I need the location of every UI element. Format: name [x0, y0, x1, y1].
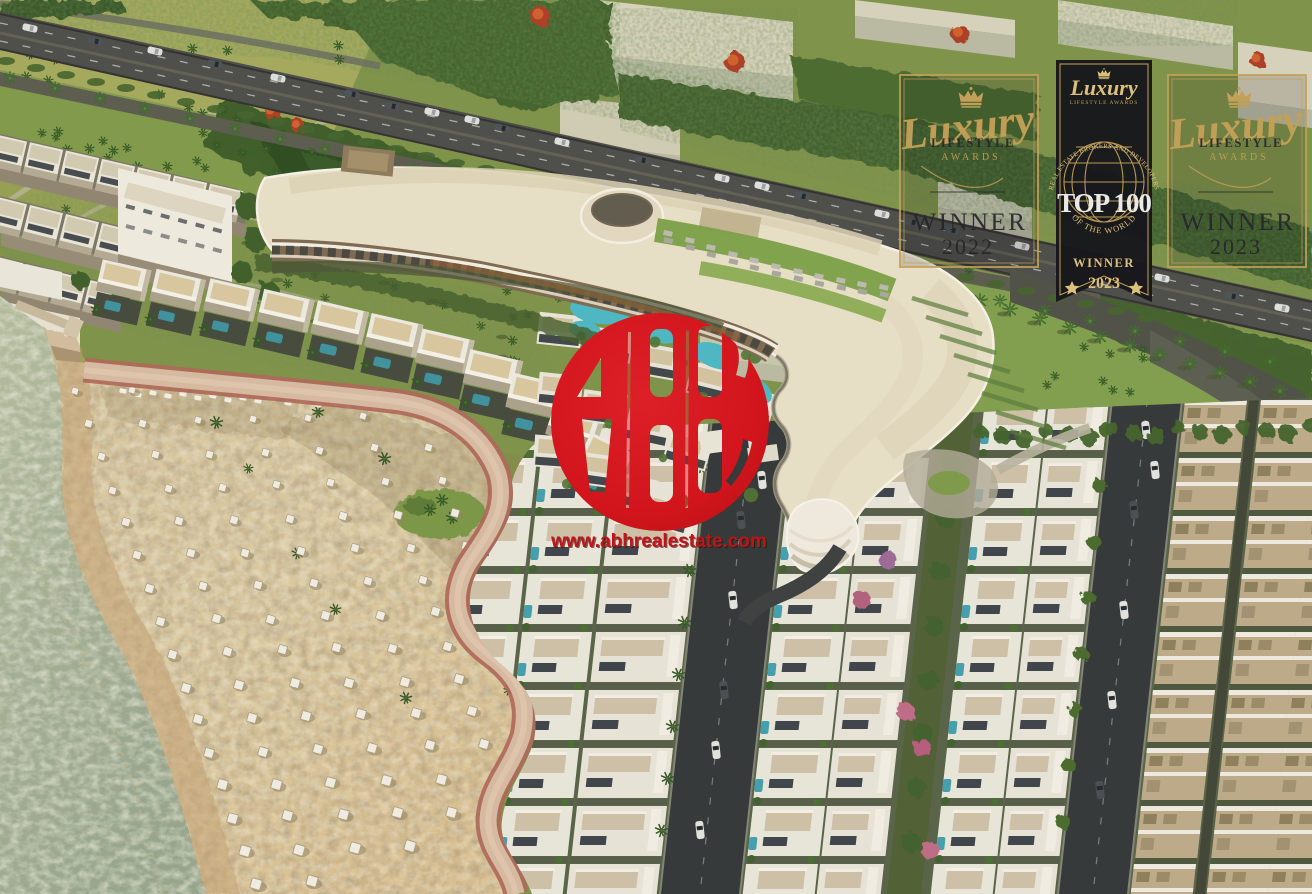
- svg-text:AWARDS: AWARDS: [941, 152, 1000, 163]
- svg-text:www.abhrealestate.com: www.abhrealestate.com: [550, 531, 767, 552]
- svg-text:LIFESTYLE: LIFESTYLE: [931, 136, 1015, 150]
- svg-text:WINNER: WINNER: [1073, 256, 1135, 270]
- svg-text:LIFESTYLE: LIFESTYLE: [1199, 136, 1283, 150]
- svg-text:WINNER: WINNER: [913, 209, 1028, 236]
- svg-text:2023: 2023: [1088, 275, 1120, 292]
- svg-text:WINNER: WINNER: [1181, 209, 1296, 236]
- svg-text:AWARDS: AWARDS: [1209, 152, 1268, 163]
- svg-text:TOP 100: TOP 100: [1057, 188, 1151, 218]
- svg-text:2023: 2023: [1210, 234, 1262, 259]
- svg-text:Luxury: Luxury: [1069, 75, 1137, 100]
- svg-text:2022: 2022: [942, 234, 994, 259]
- svg-text:LIFESTYLE AWARDS: LIFESTYLE AWARDS: [1070, 100, 1139, 106]
